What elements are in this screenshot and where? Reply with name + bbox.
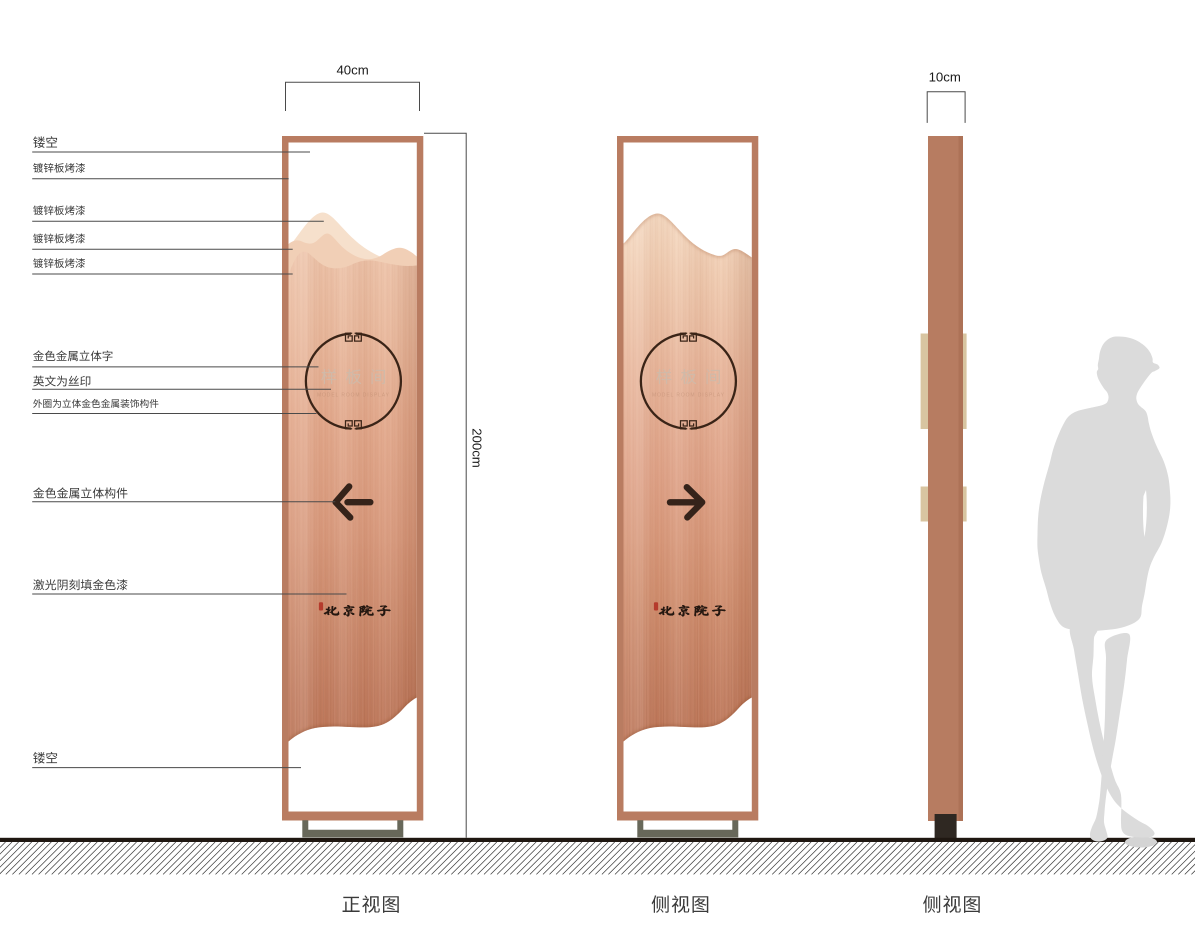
svg-text:MODEL ROOM DISPLAY: MODEL ROOM DISPLAY <box>317 393 390 399</box>
svg-text:200cm: 200cm <box>469 428 484 468</box>
svg-text:MODEL ROOM DISPLAY: MODEL ROOM DISPLAY <box>652 393 725 399</box>
svg-text:10cm: 10cm <box>929 70 961 85</box>
svg-text:40cm: 40cm <box>336 63 368 78</box>
